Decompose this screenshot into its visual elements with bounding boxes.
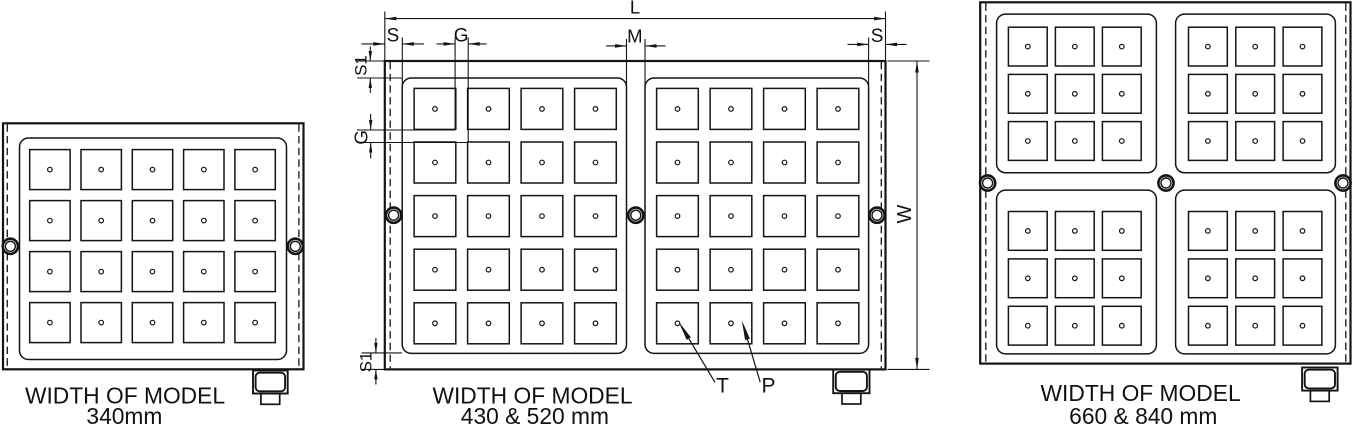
svg-text:S1: S1 — [357, 352, 376, 373]
svg-text:S1: S1 — [352, 55, 371, 76]
svg-text:S: S — [871, 26, 884, 47]
svg-text:G: G — [351, 130, 372, 145]
svg-text:G: G — [454, 25, 469, 46]
svg-text:L: L — [630, 0, 640, 18]
svg-text:W: W — [894, 204, 916, 223]
svg-text:P: P — [761, 374, 775, 397]
svg-text:S: S — [387, 25, 400, 46]
svg-text:M: M — [627, 26, 642, 47]
svg-text:T: T — [716, 374, 729, 397]
svg-text:340mm: 340mm — [86, 403, 162, 425]
svg-text:WIDTH OF MODEL: WIDTH OF MODEL — [1041, 380, 1241, 406]
svg-text:430 & 520 mm: 430 & 520 mm — [461, 403, 609, 425]
svg-text:660 & 840 mm: 660 & 840 mm — [1069, 403, 1217, 425]
